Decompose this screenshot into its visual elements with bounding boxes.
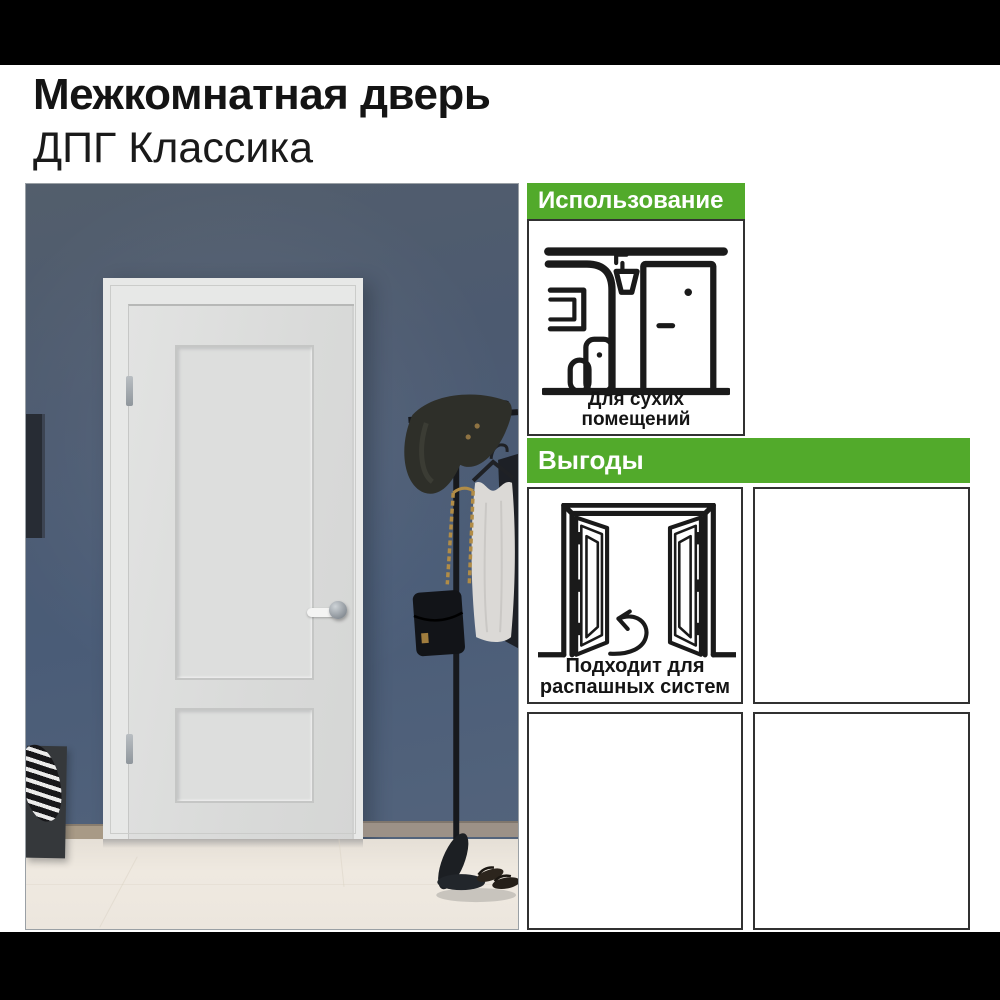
swing-doors-icon xyxy=(538,503,736,658)
top-letterbox-bar xyxy=(0,0,1000,65)
hinge xyxy=(696,532,704,544)
lamp-shade xyxy=(616,271,637,292)
bag-clasp xyxy=(421,633,429,643)
usage-header: Использование xyxy=(527,183,745,219)
hinge xyxy=(573,623,581,635)
hinge xyxy=(573,532,581,544)
benefit-box-empty-3 xyxy=(753,712,970,930)
white-tank-top xyxy=(472,482,515,642)
handbag xyxy=(412,590,465,657)
hinge xyxy=(696,623,704,635)
benefits-header-label: Выгоды xyxy=(538,445,644,476)
product-title: Межкомнатная дверь xyxy=(33,70,490,119)
usage-header-label: Использование xyxy=(538,187,724,215)
bottom-letterbox-bar xyxy=(0,932,1000,1000)
benefits-header: Выгоды xyxy=(527,438,970,483)
door-dot-handle xyxy=(684,288,692,296)
benefit-box-swing-systems: Подходит для распашных систем xyxy=(527,487,743,704)
dry-room-icon xyxy=(542,243,730,400)
hinge xyxy=(573,579,581,591)
coat-rack-scene xyxy=(26,184,518,928)
hallway-photo xyxy=(25,183,519,930)
hinge xyxy=(696,579,704,591)
usage-caption: Для сухих помещений xyxy=(529,390,743,430)
product-card: Межкомнатная дверь ДПГ Классика xyxy=(0,0,1000,1000)
benefit-box-empty-1 xyxy=(753,487,970,704)
benefit-box-empty-2 xyxy=(527,712,743,930)
page-title: Межкомнатная дверь ДПГ Классика xyxy=(33,70,490,172)
usage-box: Для сухих помещений xyxy=(527,219,745,436)
hat-stud xyxy=(466,434,471,439)
door-outline xyxy=(643,264,713,391)
swing-arrow xyxy=(610,617,646,654)
chain-strap xyxy=(447,493,453,585)
hat-stud xyxy=(475,423,480,428)
benefit-caption: Подходит для распашных систем xyxy=(529,656,741,698)
product-subtitle: ДПГ Классика xyxy=(33,124,490,172)
